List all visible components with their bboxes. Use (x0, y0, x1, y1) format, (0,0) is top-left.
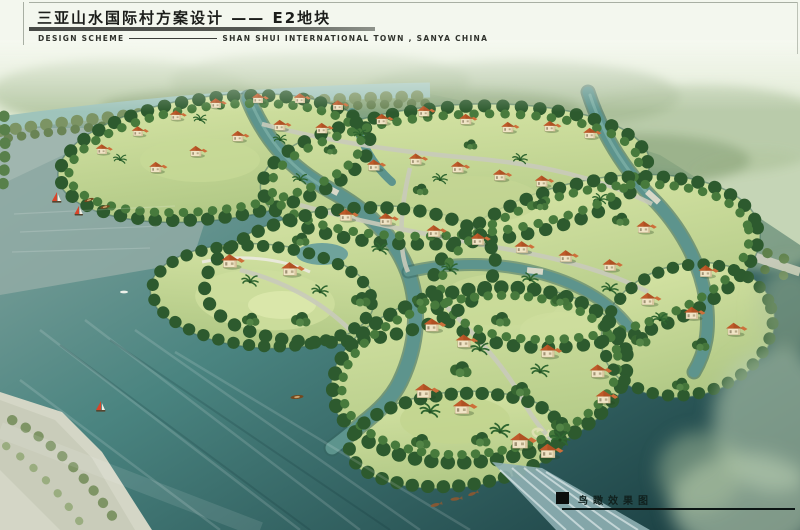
page-title: 三亚山水国际村方案设计 —— E2地块 (37, 7, 331, 28)
frame-line-right (797, 2, 798, 54)
rendering-board: 三亚山水国际村方案设计 —— E2地块 DESIGN SCHEME SHAN S… (0, 0, 800, 530)
subtitle-left: DESIGN SCHEME (38, 34, 124, 43)
aerial-rendering (0, 0, 800, 530)
caption-text: 鸟瞰效果图 (578, 492, 653, 507)
subtitle-right: SHAN SHUI INTERNATIONAL TOWN , SANYA CHI… (222, 34, 488, 43)
subtitle-dash-line (129, 38, 217, 40)
frame-line-top (29, 2, 797, 3)
caption-marker-icon (556, 492, 569, 504)
caption-underline (562, 508, 795, 510)
subtitle: DESIGN SCHEME SHAN SHUI INTERNATIONAL TO… (38, 34, 488, 43)
frame-line-left (23, 2, 24, 45)
title-rule (29, 27, 375, 31)
white-boat (120, 291, 128, 294)
mist-fade (0, 40, 800, 112)
